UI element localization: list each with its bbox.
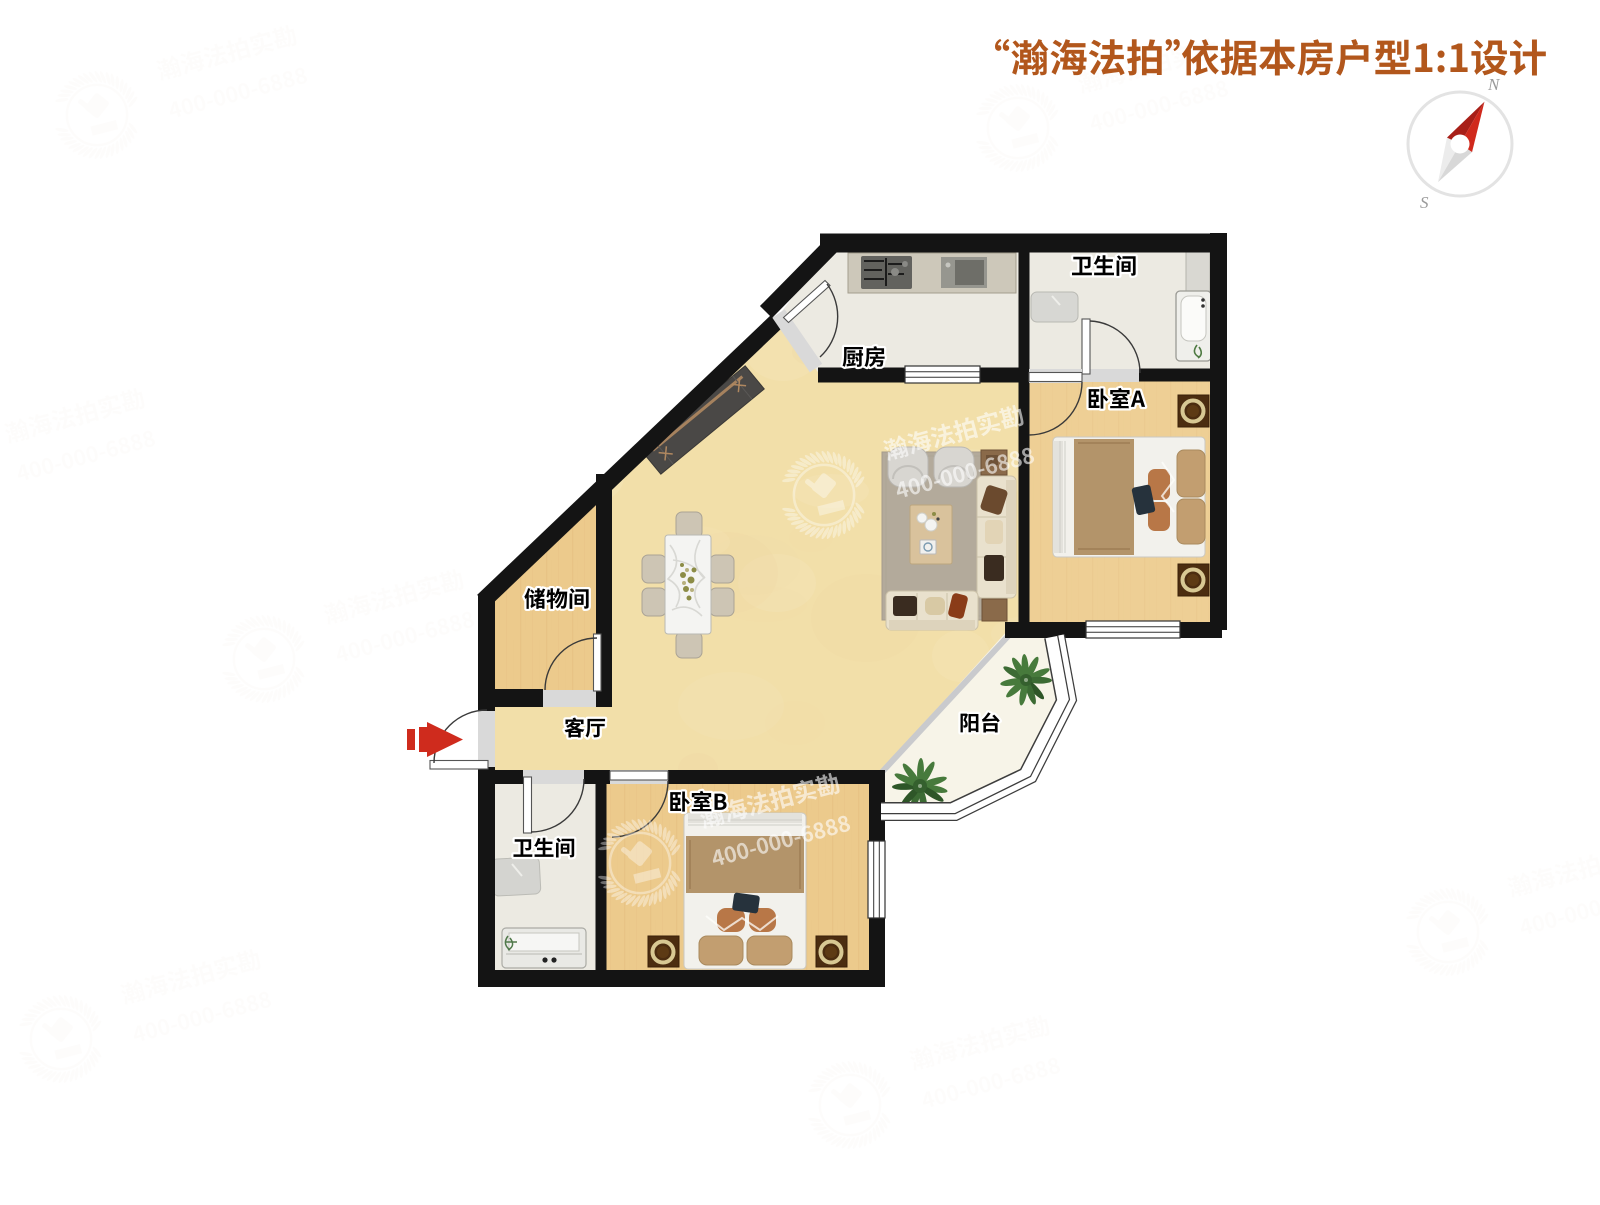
- svg-text:N: N: [1487, 75, 1501, 94]
- svg-text:S: S: [1420, 193, 1429, 212]
